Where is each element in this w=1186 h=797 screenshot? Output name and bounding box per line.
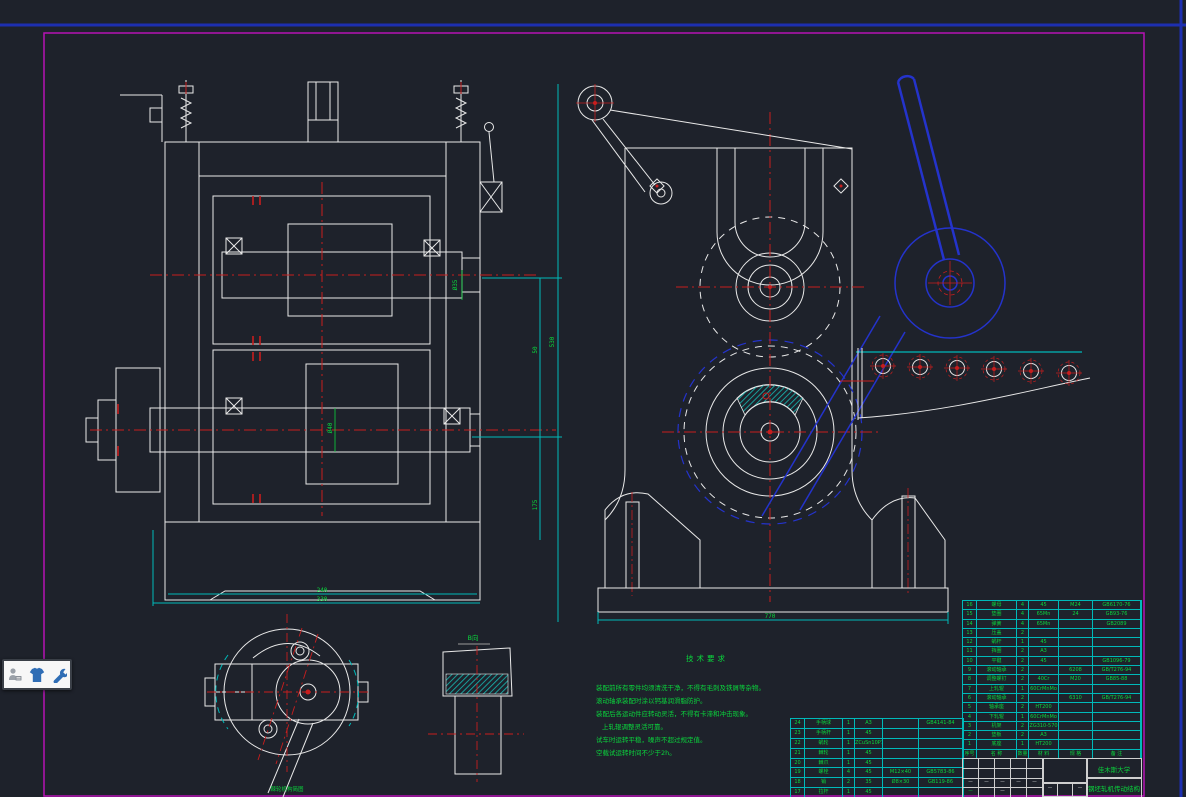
table-cell (1093, 685, 1141, 693)
table-cell: 规 格 (1059, 750, 1093, 758)
title-block-mark-cells: — — (1042, 782, 1088, 797)
table-cell: HT200 (1029, 703, 1059, 711)
table-cell: 6310 (1059, 694, 1093, 702)
table-cell: 1 (963, 740, 977, 748)
table-cell: 弹簧 (977, 620, 1017, 628)
table-cell (963, 769, 979, 778)
table-cell (1059, 703, 1093, 711)
table-cell: 数量 (1017, 750, 1029, 758)
table-row: 1底座1HT200 (963, 740, 1141, 749)
dim-175: 175 (532, 499, 539, 510)
table-cell: 14 (963, 620, 977, 628)
table-cell: GB93-76 (1093, 610, 1141, 618)
table-cell: 17 (791, 788, 805, 797)
table-cell: 垫板 (977, 731, 1017, 739)
table-cell (1059, 620, 1093, 628)
table-cell (1093, 740, 1141, 748)
table-cell: GB/T276-94 (1093, 666, 1141, 674)
table-cell (1059, 685, 1093, 693)
table-cell: 销 (805, 778, 843, 787)
table-cell (919, 788, 963, 797)
table-cell: A3 (1029, 731, 1059, 739)
table-cell (1059, 722, 1093, 730)
table-cell: 4 (1017, 601, 1029, 609)
table-row: 15垫圈465Mn24GB93-76 (963, 610, 1141, 619)
bom-table-right: 16螺母445M24GB6170-7615垫圈465Mn24GB93-7614弹… (962, 600, 1142, 759)
table-cell (963, 759, 979, 768)
table-row: 5轴承座2HT200 (963, 703, 1141, 712)
table-cell (919, 759, 963, 768)
cad-canvas[interactable]: Ø40 Ø35 240 330 50 175 530 (0, 0, 1186, 797)
table-cell: 1 (843, 788, 855, 797)
table-cell: 10 (963, 657, 977, 665)
table-cell: M12×40 (883, 768, 919, 777)
table-cell: 45 (855, 768, 883, 777)
table-cell (1011, 788, 1027, 797)
dim-530: 530 (549, 336, 556, 347)
table-cell: 蜗杆 (977, 638, 1017, 646)
table-cell: 45 (1029, 638, 1059, 646)
table-cell: 材 料 (1029, 750, 1059, 758)
table-cell: GB4141-84 (919, 719, 963, 728)
table-cell: 滚动轴承 (977, 666, 1017, 674)
table-cell: — (979, 779, 995, 788)
table-cell: 65Mn (1029, 620, 1059, 628)
wrench-icon[interactable] (51, 667, 67, 683)
table-cell: 压盖 (977, 629, 1017, 637)
table-cell: GB2089 (1093, 620, 1141, 628)
table-row: —— (963, 788, 1043, 797)
table-cell: 底座 (977, 740, 1017, 748)
dim-240: 240 (317, 587, 328, 594)
table-cell (1093, 647, 1141, 655)
tech-line: 装配前所有零件均须清洗干净，不得有毛刺及铁屑等杂物。 (596, 682, 896, 695)
table-cell: 备 注 (1093, 750, 1141, 758)
tech-line: 装配后各运动件应转动灵活，不得有卡滞和冲击现象。 (596, 708, 896, 721)
tech-line: 空载试运转时间不少于2h。 (596, 747, 896, 760)
table-cell: 1 (1017, 740, 1029, 748)
table-cell: — (995, 779, 1011, 788)
table-cell (1029, 694, 1059, 702)
table-cell: 4 (1017, 620, 1029, 628)
front-view: Ø40 Ø35 240 330 50 175 530 (86, 80, 562, 622)
dim-330: 330 (317, 596, 328, 603)
table-cell (1029, 629, 1059, 637)
table-cell (1027, 788, 1043, 797)
table-row: 18销235Ø8×30GB119-86 (791, 778, 963, 788)
table-cell: 轴承座 (977, 703, 1017, 711)
table-cell: GB119-86 (919, 778, 963, 787)
table-cell: 19 (791, 768, 805, 777)
detail-caption: 棘轮机构简图 (270, 785, 304, 793)
b-view-detail: B向 (428, 633, 524, 782)
table-cell: GB1096-79 (1093, 657, 1141, 665)
table-cell (1093, 713, 1141, 721)
table-cell (995, 759, 1011, 768)
table-cell: 拉杆 (805, 788, 843, 797)
table-cell (1093, 731, 1141, 739)
table-cell: 平键 (977, 657, 1017, 665)
dim-dia35: Ø35 (452, 279, 459, 290)
table-cell: M24 (1059, 601, 1093, 609)
table-cell: 6208 (1059, 666, 1093, 674)
table-cell (979, 788, 995, 797)
tech-line: 上轧辊调整灵活可靠。 (602, 721, 896, 734)
table-cell: GB85-88 (1093, 675, 1141, 683)
table-cell: — (995, 788, 1011, 797)
table-row: 6滚动轴承26310GB/T276-94 (963, 694, 1141, 703)
table-cell: 12 (963, 638, 977, 646)
table-row: 7上轧辊160CrMnMo (963, 685, 1141, 694)
dim-770: 770 (765, 613, 776, 620)
table-cell: A3 (1029, 647, 1059, 655)
table-cell: HT200 (1029, 740, 1059, 748)
title-block-org: 佳木斯大学 (1086, 758, 1142, 779)
side-view: 770 (576, 76, 1090, 624)
table-cell: 1 (1017, 638, 1029, 646)
table-row (963, 759, 1043, 769)
table-cell: 名 称 (977, 750, 1017, 758)
table-cell (1059, 731, 1093, 739)
table-row: 11挡圈2A3 (963, 647, 1141, 656)
ratchet-detail: 棘轮机构简图 (205, 614, 372, 797)
table-cell (1059, 647, 1093, 655)
table-cell: 9 (963, 666, 977, 674)
tech-requirements: 技术要求 装配前所有零件均须清洗干净，不得有毛刺及铁屑等杂物。 滚动轴承装配时涂… (596, 653, 896, 760)
table-row: 10平键245GB1096-79 (963, 657, 1141, 666)
table-cell (995, 769, 1011, 778)
table-cell: 滚动轴承 (977, 694, 1017, 702)
table-cell: 挡圈 (977, 647, 1017, 655)
table-cell (1093, 638, 1141, 646)
table-cell: — (963, 779, 979, 788)
table-cell (1059, 713, 1093, 721)
table-cell (1093, 703, 1141, 711)
table-cell: 4 (963, 713, 977, 721)
table-cell (1011, 769, 1027, 778)
table-cell: — (1011, 779, 1027, 788)
mark-cell: — (1042, 782, 1058, 797)
table-cell (1027, 769, 1043, 778)
table-cell: GB5783-86 (919, 768, 963, 777)
table-cell (1059, 657, 1093, 665)
table-cell: ZG310-570 (1029, 722, 1059, 730)
dim-dia40: Ø40 (327, 422, 334, 433)
table-cell: 18 (791, 778, 805, 787)
title-block-empty-box (1042, 758, 1088, 784)
table-cell: 4 (843, 768, 855, 777)
table-cell: 45 (1029, 601, 1059, 609)
table-cell: 4 (1017, 610, 1029, 618)
table-cell: 2 (1017, 703, 1029, 711)
table-cell: 垫圈 (977, 610, 1017, 618)
table-cell: 24 (1059, 610, 1093, 618)
table-cell: 3 (963, 722, 977, 730)
table-cell: 35 (855, 778, 883, 787)
table-cell: 下轧辊 (977, 713, 1017, 721)
table-row (963, 769, 1043, 779)
table-cell (1059, 638, 1093, 646)
table-cell: 2 (1017, 629, 1029, 637)
table-cell (1093, 722, 1141, 730)
table-cell: 2 (843, 778, 855, 787)
table-cell (919, 749, 963, 758)
table-cell: 1 (1017, 713, 1029, 721)
table-cell: Ø8×30 (883, 778, 919, 787)
tech-line: 滚动轴承装配时涂以钙基润滑脂防护。 (596, 695, 896, 708)
table-cell: 7 (963, 685, 977, 693)
table-row: ————— (963, 779, 1043, 789)
table-row: 4下轧辊160CrMnMo (963, 713, 1141, 722)
table-cell: 11 (963, 647, 977, 655)
table-cell (919, 739, 963, 748)
table-cell: 2 (1017, 731, 1029, 739)
table-row: 14弹簧465MnGB2089 (963, 620, 1141, 629)
table-cell: 2 (963, 731, 977, 739)
table-cell: 16 (963, 601, 977, 609)
table-cell: 上轧辊 (977, 685, 1017, 693)
table-row: 16螺母445M24GB6170-76 (963, 601, 1141, 610)
table-cell: 2 (1017, 694, 1029, 702)
table-cell: 6 (963, 694, 977, 702)
tech-requirements-title: 技术要求 (686, 653, 896, 664)
table-cell (883, 788, 919, 797)
table-row: 17拉杆145 (791, 788, 963, 797)
table-cell: 2 (1017, 675, 1029, 683)
table-cell: 15 (963, 610, 977, 618)
table-cell: 调整螺钉 (977, 675, 1017, 683)
reader-icon[interactable] (7, 667, 23, 683)
table-cell (979, 759, 995, 768)
table-cell: 13 (963, 629, 977, 637)
table-cell (1093, 629, 1141, 637)
mark-cell (1058, 782, 1073, 797)
table-cell: — (1027, 779, 1043, 788)
view-b-label: B向 (468, 633, 479, 642)
table-cell: 螺母 (977, 601, 1017, 609)
tech-line: 试车时运转平稳，噪声不超过规定值。 (596, 734, 896, 747)
table-cell: 5 (963, 703, 977, 711)
table-cell: 序号 (963, 750, 977, 758)
table-cell: 2 (1017, 722, 1029, 730)
table-cell (1059, 740, 1093, 748)
table-row: 19螺栓445M12×40GB5783-86 (791, 768, 963, 778)
table-cell: 2 (1017, 657, 1029, 665)
table-cell: 45 (1029, 657, 1059, 665)
dim-50: 50 (532, 346, 539, 354)
table-cell: 螺栓 (805, 768, 843, 777)
table-cell: M20 (1059, 675, 1093, 683)
table-cell: 60CrMnMo (1029, 713, 1059, 721)
table-row: 9滚动轴承26208GB/T276-94 (963, 666, 1141, 675)
table-row: 8调整螺钉240CrM20GB85-88 (963, 675, 1141, 684)
signature-grid: ——————— (962, 758, 1044, 797)
table-cell (1029, 666, 1059, 674)
table-cell (1027, 759, 1043, 768)
table-cell (1059, 629, 1093, 637)
table-row: 2垫板2A3 (963, 731, 1141, 740)
table-cell: 45 (855, 788, 883, 797)
table-cell: GB6170-76 (1093, 601, 1141, 609)
table-cell: 65Mn (1029, 610, 1059, 618)
table-cell: 2 (1017, 666, 1029, 674)
table-cell (1011, 759, 1027, 768)
roller-row (870, 353, 1082, 386)
table-cell (919, 729, 963, 738)
floating-toolbar[interactable] (2, 659, 72, 690)
shirt-icon[interactable] (29, 667, 45, 683)
table-row: 3机架2ZG310-570 (963, 722, 1141, 731)
table-cell: — (963, 788, 979, 797)
table-cell: 60CrMnMo (1029, 685, 1059, 693)
title-block-drawing-name: 钢坯轧机传动结构 (1086, 777, 1142, 797)
table-cell: 40Cr (1029, 675, 1059, 683)
table-row: 12蜗杆145 (963, 638, 1141, 647)
table-cell: 机架 (977, 722, 1017, 730)
table-cell (979, 769, 995, 778)
table-cell: GB/T276-94 (1093, 694, 1141, 702)
table-cell: 8 (963, 675, 977, 683)
table-cell: 2 (1017, 647, 1029, 655)
table-cell: 1 (1017, 685, 1029, 693)
table-row: 13压盖2 (963, 629, 1141, 638)
